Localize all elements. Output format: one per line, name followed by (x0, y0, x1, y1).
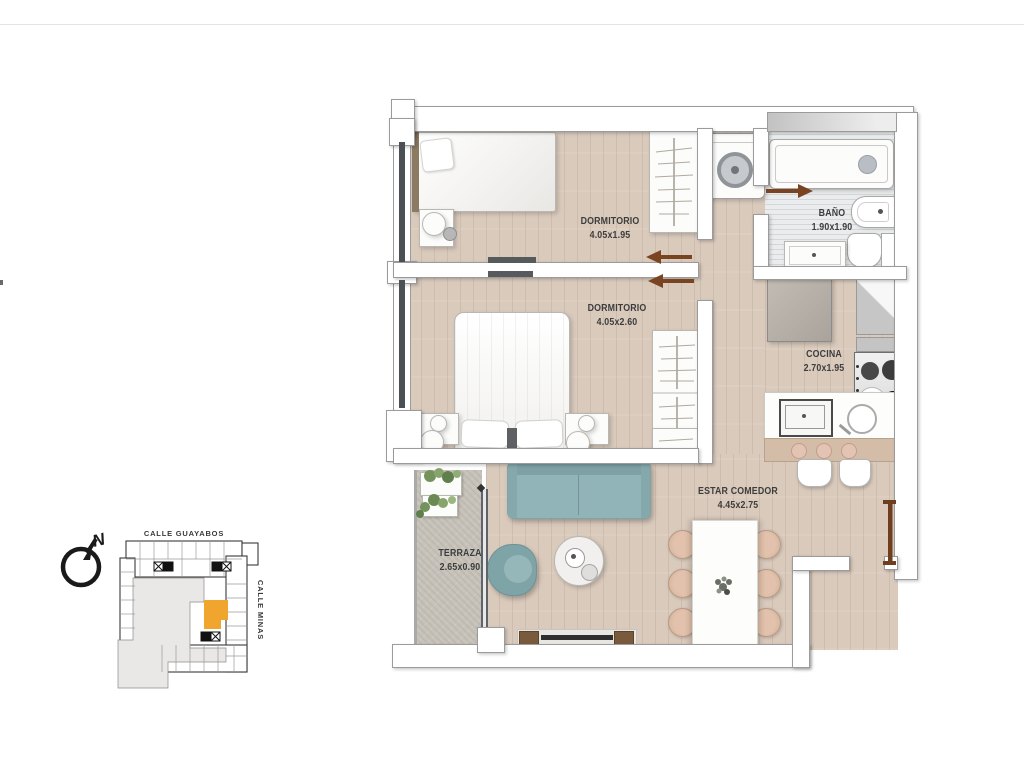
elevator-icon (154, 562, 173, 571)
room-dims: 4.05x1.95 (551, 229, 669, 243)
terrace-plants (412, 464, 482, 524)
kitchen-duct-box (767, 277, 832, 342)
shower-head-icon (858, 155, 877, 174)
shelf-mark-1 (488, 257, 536, 263)
bathroom-left-wall-upper (753, 128, 769, 186)
sliding-door-end-wall (477, 627, 505, 653)
bedroom2-window-glass (399, 280, 405, 408)
elevator-icon (212, 562, 231, 571)
right-wall (894, 112, 918, 580)
key-plan: N (50, 515, 275, 695)
vase-bedroom1 (443, 227, 457, 241)
entry-step-wall-horizontal (792, 556, 850, 571)
hall-wall-lower (697, 300, 713, 464)
right-wall-foot (884, 556, 898, 570)
bar-plate-3 (841, 443, 857, 459)
single-bed-pillow (419, 137, 455, 173)
bedroom1-window-glass (399, 142, 405, 262)
elevator-icon (201, 632, 220, 641)
scan-speck (0, 280, 3, 285)
bathtub (769, 139, 894, 189)
room-label-terraza: TERRAZA 2.65x0.90 (401, 547, 519, 574)
highlighted-unit (204, 600, 228, 629)
street-label-right: CALLE MINAS (256, 580, 265, 640)
room-name: BAÑO (773, 207, 891, 221)
lamp-bedroom2-right-small (578, 415, 595, 432)
bathroom-left-wall-lower (753, 214, 769, 274)
hall-wall-upper (697, 128, 713, 240)
room-dims: 2.70x1.95 (765, 362, 883, 376)
room-label-bano: BAÑO 1.90x1.90 (773, 207, 891, 234)
sofa (507, 461, 651, 519)
bathroom-kitchen-wall (753, 266, 907, 280)
room-name: ESTAR COMEDOR (679, 485, 797, 499)
kitchen-bar-top (764, 438, 906, 462)
street-label-top: CALLE GUAYABOS (144, 529, 224, 538)
bedroom2-living-wall (393, 448, 699, 464)
coffee-table (554, 536, 604, 586)
north-label: N (90, 529, 107, 551)
table-centerpiece (693, 521, 757, 647)
bar-stool-1 (797, 459, 832, 487)
room-name: DORMITORIO (551, 215, 669, 229)
room-dims: 1.90x1.90 (773, 221, 891, 235)
entry-step-wall-vertical (792, 556, 810, 668)
room-name: COCINA (765, 348, 883, 362)
room-dims: 4.05x2.60 (558, 316, 676, 330)
double-bed-pillow-left (461, 419, 510, 449)
room-label-dormitorio2: DORMITORIO 4.05x2.60 (558, 302, 676, 329)
bar-plate-2 (816, 443, 832, 459)
kitchen-sink (779, 399, 833, 437)
room-dims: 4.45x2.75 (679, 499, 797, 513)
room-label-cocina: COCINA 2.70x1.95 (765, 348, 883, 375)
room-label-estar-comedor: ESTAR COMEDOR 4.45x2.75 (679, 485, 797, 512)
bar-stool-2 (839, 459, 871, 487)
scan-edge-line (0, 24, 1024, 25)
dining-table (692, 520, 758, 648)
double-bed-runner (507, 428, 517, 448)
bar-plate-1 (791, 443, 807, 459)
room-name: TERRAZA (401, 547, 519, 561)
room-name: DORMITORIO (558, 302, 676, 316)
floor-plan-page: DORMITORIO 4.05x1.95 DORMITORIO 4.05x2.6… (0, 0, 1024, 768)
kitchen-faucet-icon (847, 404, 877, 434)
toilet-tank (881, 233, 895, 268)
double-bed-pillow-right (515, 419, 564, 449)
bedroom-divider-wall (393, 262, 699, 278)
room-dims: 2.65x0.90 (401, 561, 519, 575)
tv-screen (541, 635, 613, 640)
toilet (847, 233, 882, 268)
north-compass-icon: N (63, 529, 108, 585)
duct-strip (767, 112, 897, 132)
room-label-dormitorio1: DORMITORIO 4.05x1.95 (551, 215, 669, 242)
bottom-wall (392, 644, 810, 668)
shelf-mark-2 (488, 271, 533, 277)
